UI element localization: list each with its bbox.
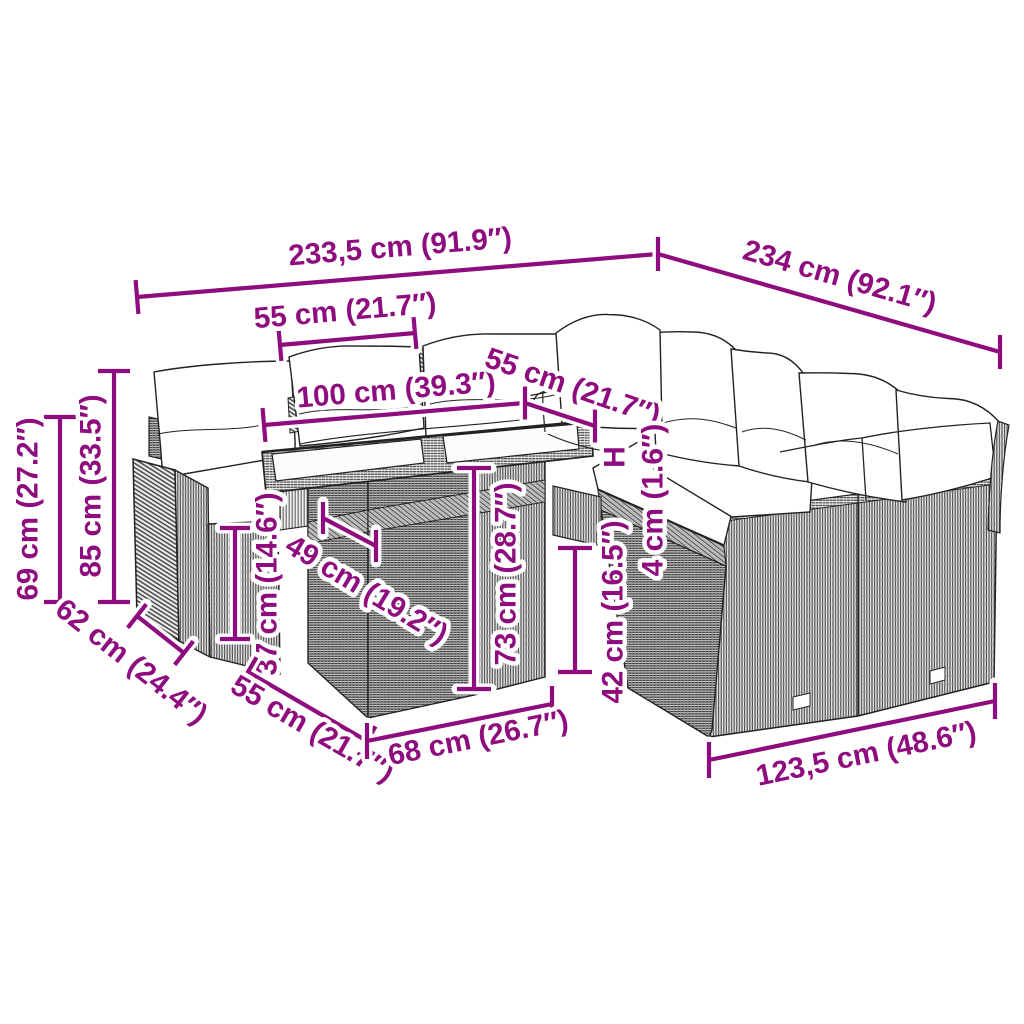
svg-text:H: H: [599, 446, 632, 468]
svg-text:85 cm (33.5″): 85 cm (33.5″): [74, 394, 107, 577]
svg-text:73 cm (28.7″): 73 cm (28.7″): [489, 482, 522, 665]
svg-text:69 cm (27.2″): 69 cm (27.2″): [11, 417, 44, 600]
svg-text:4 cm (1.6″): 4 cm (1.6″): [637, 424, 670, 577]
svg-text:42 cm (16.5″): 42 cm (16.5″): [596, 520, 629, 703]
svg-text:37 cm (14.6″): 37 cm (14.6″): [250, 492, 283, 675]
